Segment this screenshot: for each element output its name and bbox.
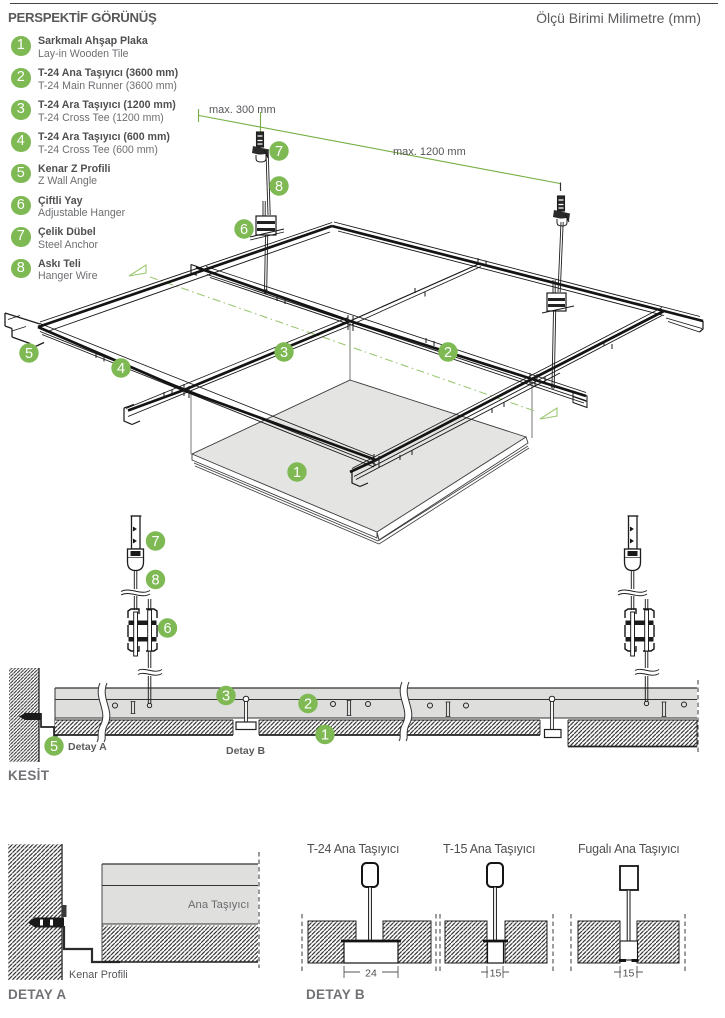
svg-text:15: 15 (490, 968, 502, 980)
svg-text:7: 7 (151, 534, 159, 550)
svg-text:5: 5 (25, 346, 33, 362)
svg-text:7: 7 (275, 144, 283, 160)
svg-text:1: 1 (321, 728, 329, 744)
svg-text:8: 8 (151, 573, 159, 589)
svg-text:2: 2 (304, 697, 312, 713)
svg-text:4: 4 (117, 361, 125, 377)
svg-text:1: 1 (293, 465, 301, 481)
svg-text:5: 5 (50, 739, 58, 755)
svg-text:8: 8 (275, 179, 283, 195)
svg-text:6: 6 (163, 621, 171, 637)
svg-text:3: 3 (280, 345, 288, 361)
svg-text:3: 3 (222, 689, 230, 705)
svg-text:24: 24 (365, 968, 377, 980)
svg-text:2: 2 (444, 345, 452, 361)
svg-text:15: 15 (623, 968, 635, 980)
svg-text:6: 6 (240, 222, 248, 238)
